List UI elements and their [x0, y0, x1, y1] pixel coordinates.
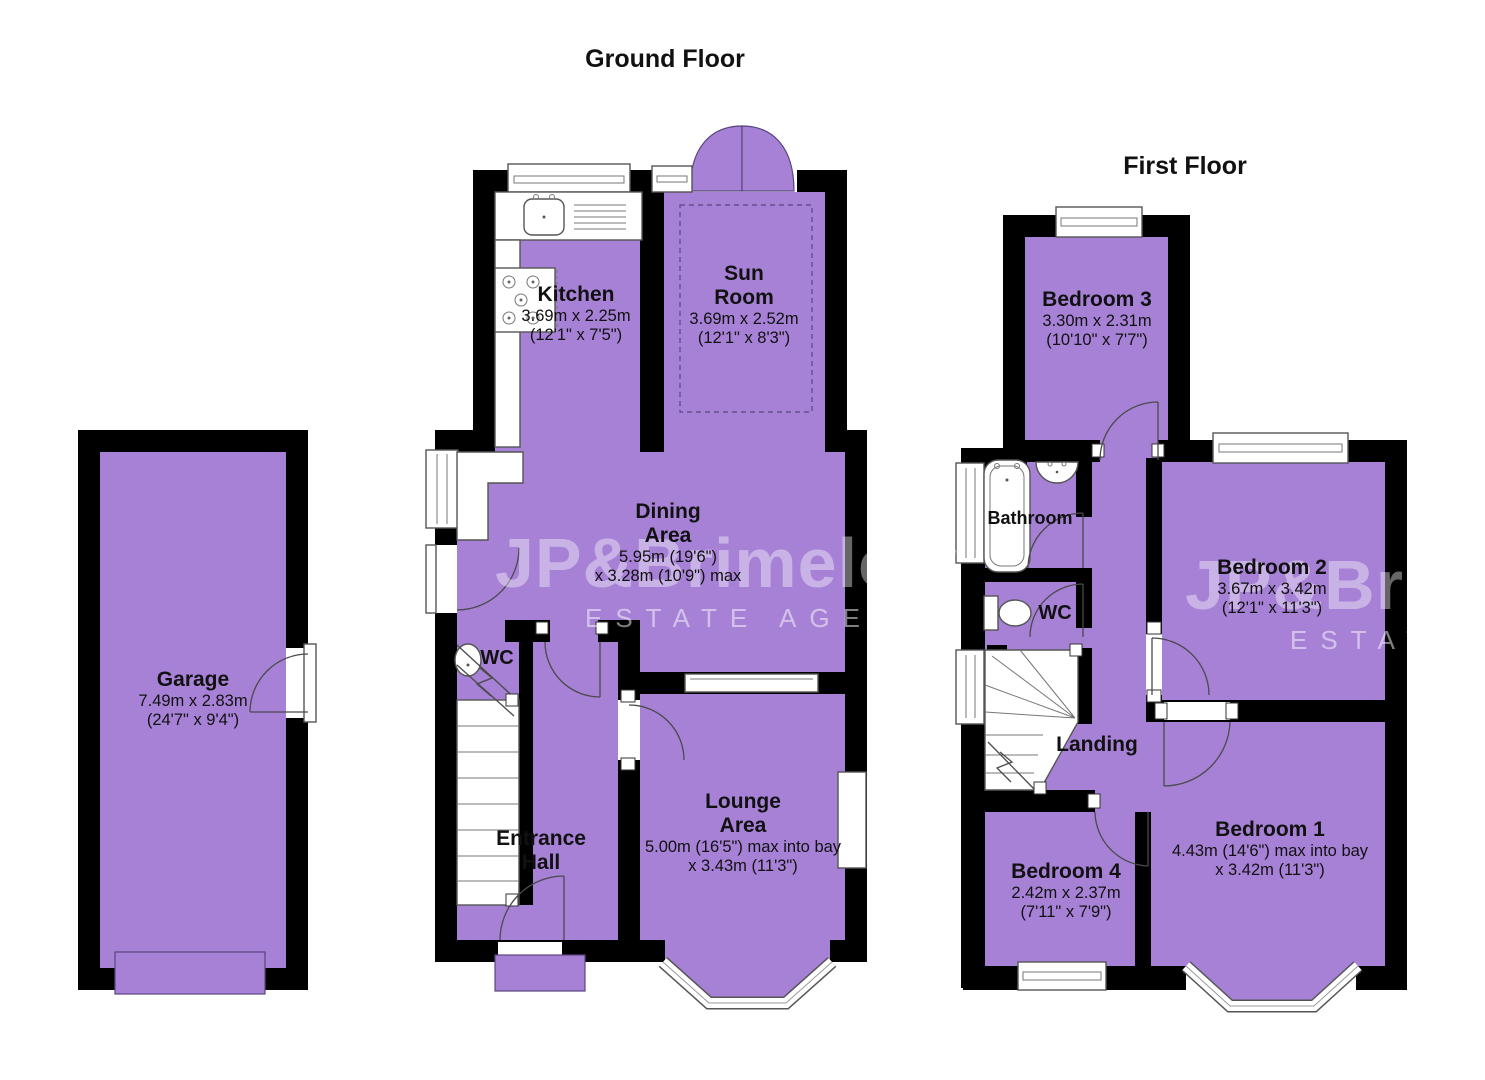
entrance-hall-name-1: Entrance — [496, 827, 586, 851]
bedroom2-dim-metric: 3.67m x 3.42m — [1217, 580, 1327, 599]
bedroom1-dim-metric: 4.43m (14'6") max into bay — [1172, 842, 1368, 861]
sun-room-name-1: Sun — [689, 262, 798, 286]
first-floor-title: First Floor — [1123, 152, 1247, 181]
entrance-hall-label: Entrance Hall — [496, 827, 586, 875]
dining-dim-metric: 5.95m (19'6") — [595, 548, 742, 567]
bedroom3-window — [1056, 207, 1142, 237]
kitchen-dim-metric: 3.69m x 2.25m — [521, 307, 630, 326]
garage-label: Garage 7.49m x 2.83m (24'7" x 9'4") — [138, 668, 247, 730]
bedroom2-window — [1213, 433, 1348, 463]
fireplace — [838, 772, 866, 868]
landing-name: Landing — [1056, 733, 1138, 757]
lounge-name-2: Area — [645, 814, 841, 838]
dining-dim-imperial: x 3.28m (10'9") max — [595, 567, 742, 586]
french-door-leaf-left — [690, 126, 742, 191]
first-wc-label: WC — [1038, 603, 1071, 623]
lounge-dim-imperial: x 3.43m (11'3") — [645, 857, 841, 876]
bedroom1-name: Bedroom 1 — [1172, 818, 1368, 842]
bathroom-label: Bathroom — [988, 508, 1073, 528]
dining-name-2: Area — [595, 524, 742, 548]
sun-room-side-window — [652, 166, 692, 192]
porch-step — [495, 955, 585, 991]
kitchen-window — [508, 164, 630, 192]
bedroom3-dim-metric: 3.30m x 2.31m — [1042, 312, 1152, 331]
bedroom2-door-opening — [1146, 634, 1162, 695]
watermark-tagline-first: ESTATE AGENTS — [1290, 625, 1485, 656]
bedroom2-name: Bedroom 2 — [1217, 556, 1327, 580]
garage-dim-metric: 7.49m x 2.83m — [138, 692, 247, 711]
sun-room-dim-imperial: (12'1" x 8'3") — [689, 329, 798, 348]
entrance-hall-name-2: Hall — [496, 851, 586, 875]
bedroom1-dim-imperial: x 3.42m (11'3") — [1172, 861, 1368, 880]
lounge-name-1: Lounge — [645, 790, 841, 814]
kitchen-dim-imperial: (12'1" x 7'5") — [521, 326, 630, 345]
bedroom3-label: Bedroom 3 3.30m x 2.31m (10'10" x 7'7") — [1042, 288, 1152, 350]
bedroom2-dim-imperial: (12'1" x 11'3") — [1217, 599, 1327, 618]
ground-wc-label: WC — [480, 648, 513, 668]
dining-side-window — [426, 450, 458, 528]
garage-door-step — [115, 952, 265, 994]
lounge-area-label: Lounge Area 5.00m (16'5") max into bay x… — [645, 790, 841, 876]
sun-room-label: Sun Room 3.69m x 2.52m (12'1" x 8'3") — [689, 262, 798, 348]
sun-room-dim-metric: 3.69m x 2.52m — [689, 310, 798, 329]
bedroom3-dim-imperial: (10'10" x 7'7") — [1042, 331, 1152, 350]
ground-wc-sink-icon — [455, 644, 481, 676]
bedroom4-dim-imperial: (7'11" x 7'9") — [1011, 903, 1121, 922]
bedroom4-name: Bedroom 4 — [1011, 860, 1121, 884]
sun-room-name-2: Room — [689, 286, 798, 310]
bedroom1-label: Bedroom 1 4.43m (14'6") max into bay x 3… — [1172, 818, 1368, 880]
first-wc-name: WC — [1038, 603, 1071, 623]
dining-area-label: Dining Area 5.95m (19'6") x 3.28m (10'9"… — [595, 500, 742, 586]
landing-window — [956, 650, 984, 724]
garage-door-frame — [304, 644, 316, 722]
garage-name: Garage — [138, 668, 247, 692]
bedroom2-label: Bedroom 2 3.67m x 3.42m (12'1" x 11'3") — [1217, 556, 1327, 618]
watermark-tagline-ground: ESTATE AGENTS — [585, 603, 964, 634]
bathroom-name: Bathroom — [988, 508, 1073, 528]
bedroom3-name: Bedroom 3 — [1042, 288, 1152, 312]
bathroom-window — [956, 463, 984, 563]
ground-wc-name: WC — [480, 648, 513, 668]
kitchen-label: Kitchen 3.69m x 2.25m (12'1" x 7'5") — [521, 283, 630, 345]
ground-floor-title: Ground Floor — [585, 45, 745, 74]
kitchen-sink-icon — [524, 195, 564, 236]
dining-lounge-opening — [685, 674, 818, 692]
floorplan-canvas: JP&Brimelow ESTATE AGENTS JP&Brimelow ES… — [0, 0, 1485, 1080]
bedroom4-label: Bedroom 4 2.42m x 2.37m (7'11" x 7'9") — [1011, 860, 1121, 922]
bedroom1-door-opening — [1164, 702, 1230, 720]
lounge-dim-metric: 5.00m (16'5") max into bay — [645, 838, 841, 857]
bedroom4-window — [1018, 962, 1106, 990]
kitchen-name: Kitchen — [521, 283, 630, 307]
french-door-leaf-right — [742, 126, 794, 191]
landing-label: Landing — [1056, 733, 1138, 757]
garage-dim-imperial: (24'7" x 9'4") — [138, 711, 247, 730]
bedroom4-dim-metric: 2.42m x 2.37m — [1011, 884, 1121, 903]
dining-name-1: Dining — [595, 500, 742, 524]
